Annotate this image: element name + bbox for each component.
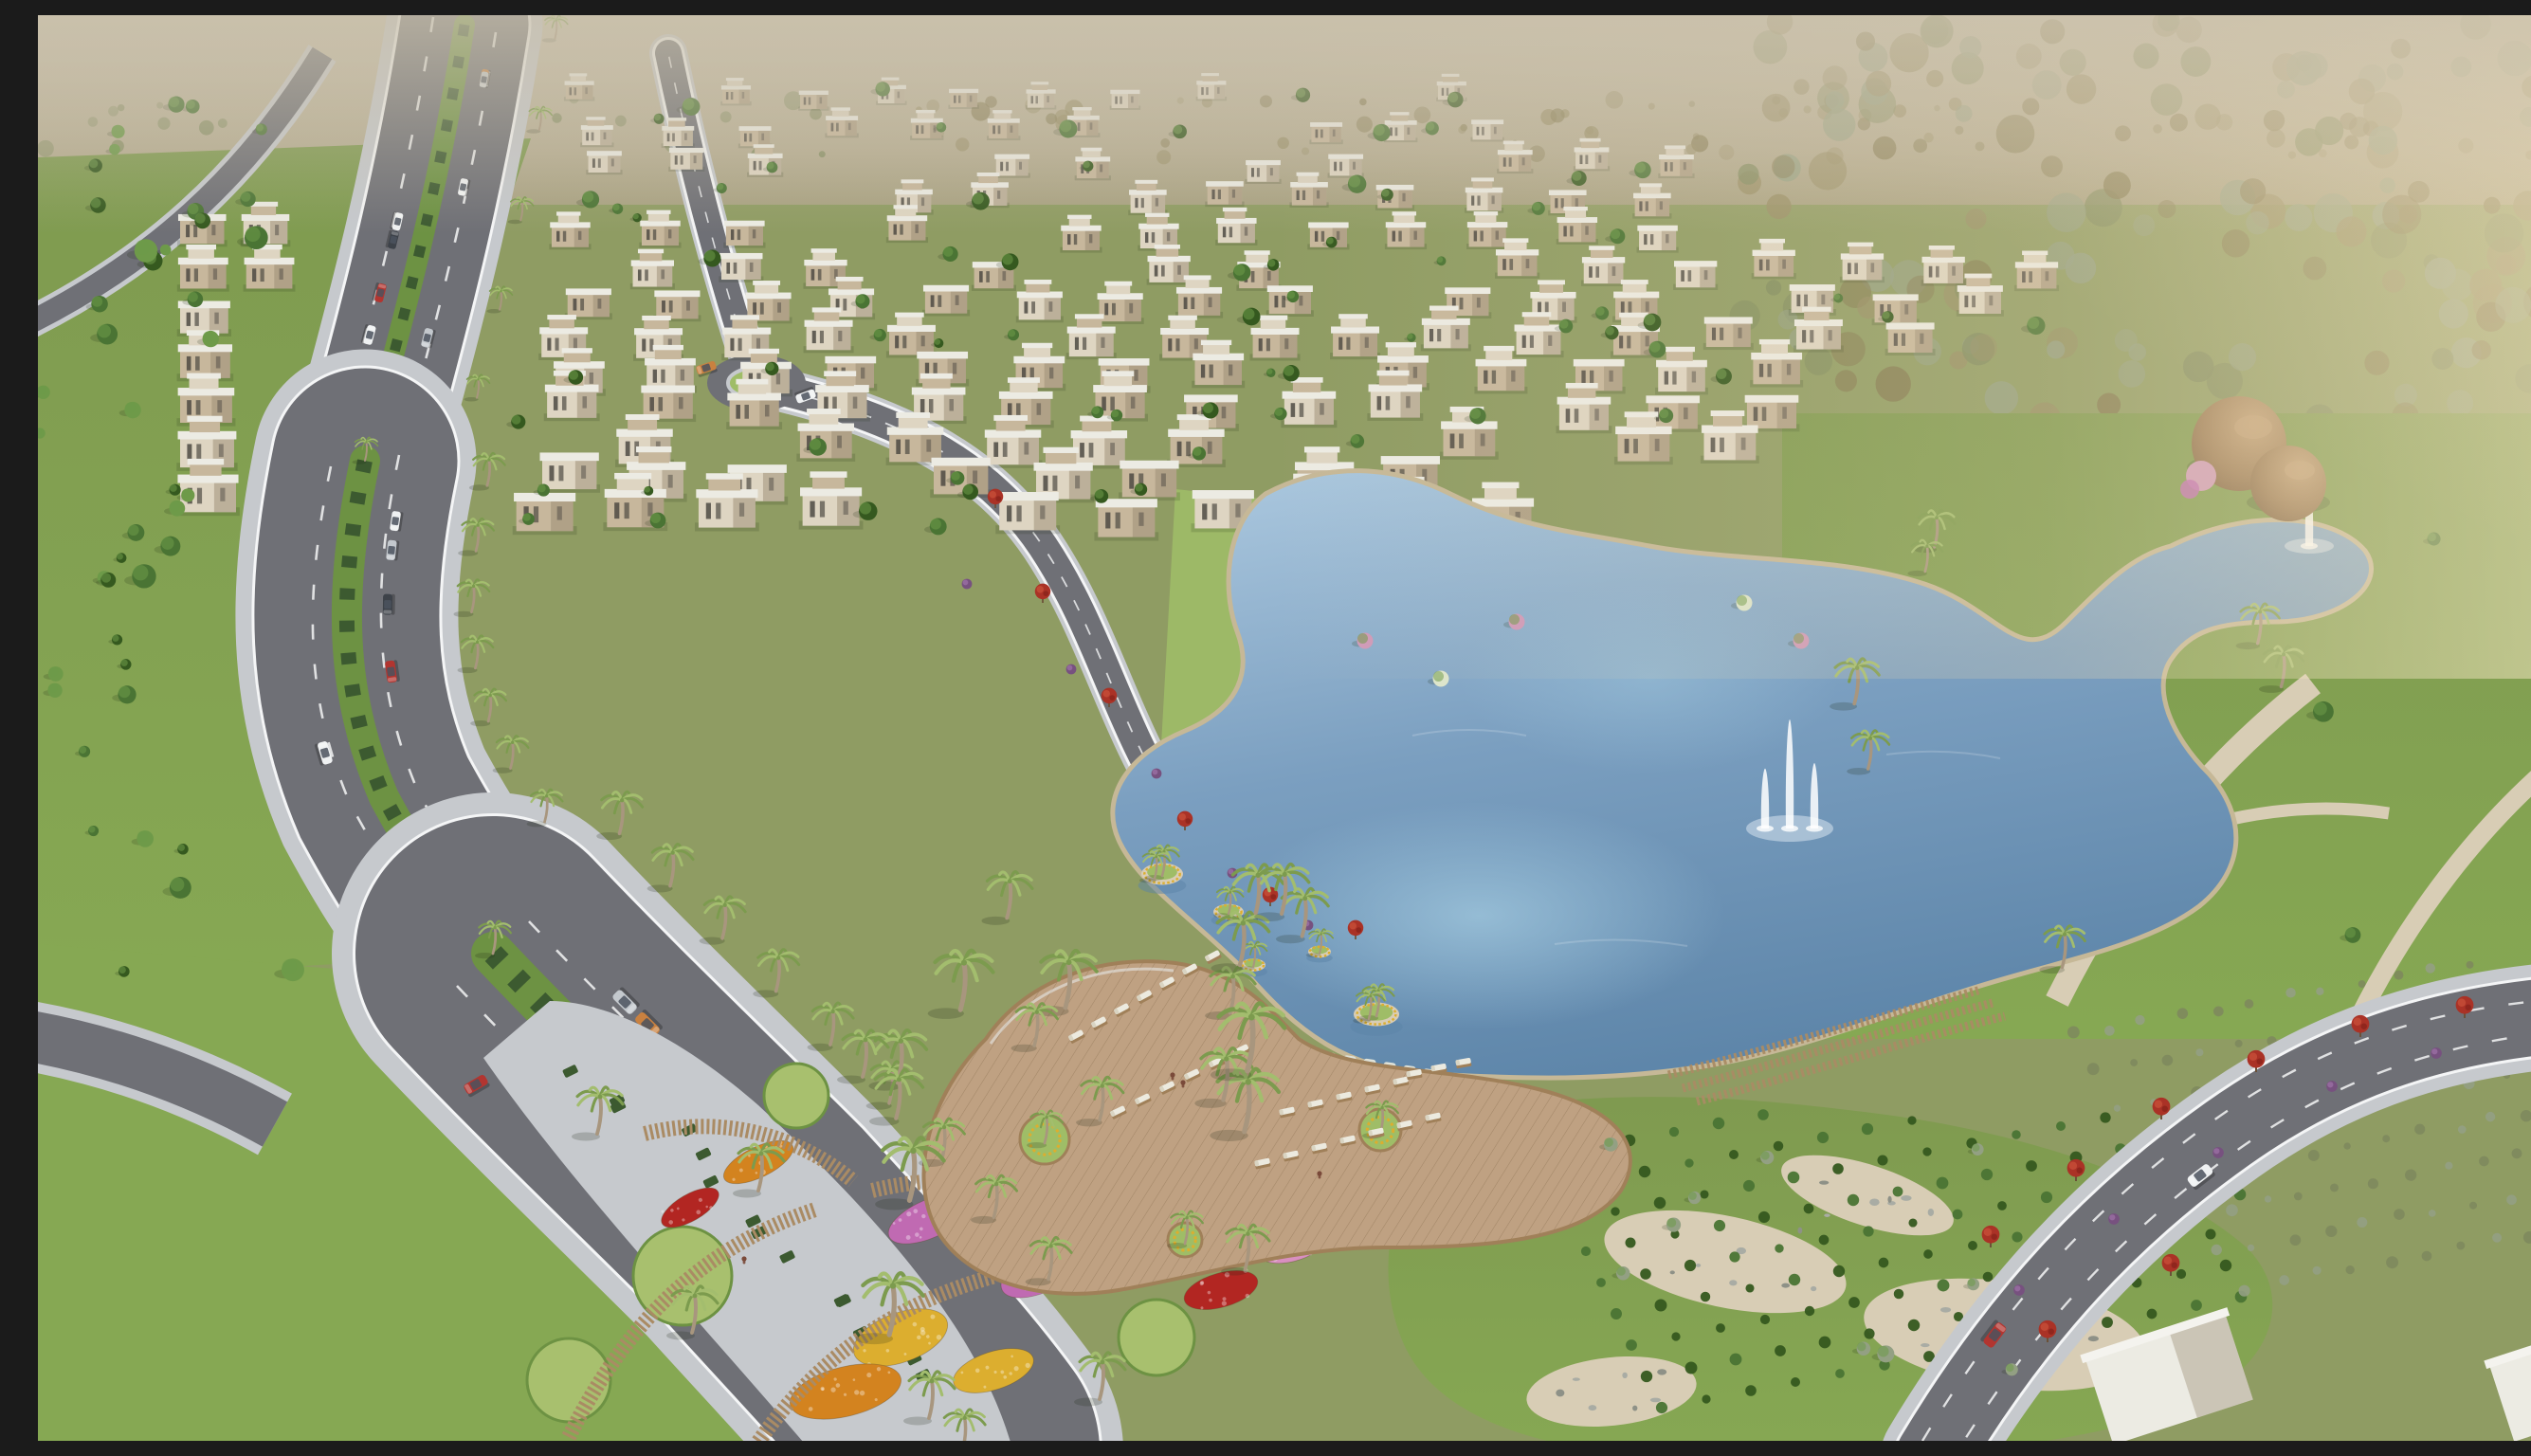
purple-shrub (2431, 1047, 2442, 1059)
scrub-shrub (2467, 961, 2474, 969)
orchard-shrub (1669, 1127, 1679, 1137)
rock (1940, 1307, 1951, 1313)
orchard-shrub (1729, 1150, 1739, 1159)
rock (1887, 1196, 1891, 1203)
rock (1632, 1406, 1637, 1411)
scrub-shrub (2429, 1210, 2436, 1217)
rock (1650, 1398, 1661, 1403)
purple-shrub (2013, 1284, 2025, 1296)
orchard-shrub (1938, 1280, 1950, 1292)
purple-shrub (1152, 769, 1162, 779)
rock (1921, 1343, 1930, 1347)
scrub-shrub (2265, 1195, 2271, 1202)
orchard-shrub (1922, 1147, 1931, 1156)
orchard-shrub (1684, 1158, 1693, 1167)
orchard-shrub (1775, 1345, 1786, 1356)
scrub-shrub (2512, 1148, 2522, 1158)
orchard-shrub (1894, 1289, 1904, 1300)
orchard-shrub (1714, 1220, 1725, 1231)
scrub-shrub (2279, 1275, 2289, 1285)
scrub-shrub (2414, 1124, 2425, 1135)
orchard-shrub (1835, 1369, 1845, 1378)
orchard-shrub (1877, 1155, 1887, 1165)
orchard-shrub (1805, 1306, 1814, 1316)
scrub-shrub (2456, 1242, 2465, 1250)
orchard-shrub (1848, 1297, 1860, 1308)
orchard-shrub (2100, 1112, 2110, 1122)
orchard-shrub (1641, 1371, 1652, 1382)
scrub-shrub (2405, 1169, 2416, 1180)
rock (1556, 1390, 1564, 1397)
orchard-shrub (1701, 1292, 1710, 1301)
orchard-shrub (1713, 1118, 1725, 1130)
purple-shrub (962, 579, 973, 590)
orchard-shrub (1907, 1116, 1916, 1124)
orchard-shrub (1700, 1190, 1708, 1198)
scrub-shrub (2485, 1112, 2495, 1121)
rock (1657, 1369, 1666, 1374)
orchard-shrub (1968, 1241, 1977, 1250)
rock (1729, 1280, 1737, 1285)
scrub-shrub (2104, 1026, 2115, 1036)
scrub-shrub (2469, 1202, 2477, 1210)
scrub-shrub (2290, 1234, 2302, 1246)
scrub-shrub (2357, 1217, 2367, 1228)
orchard-shrub (1817, 1132, 1829, 1143)
rock (1824, 1213, 1830, 1217)
rock (1622, 1373, 1628, 1378)
scrub-shrub (2382, 1135, 2390, 1142)
orchard-shrub (2205, 1228, 2215, 1239)
orchard-shrub (2056, 1121, 2066, 1131)
orchard-shrub (1789, 1274, 1800, 1285)
orchard-shrub (1596, 1278, 1606, 1287)
scrub-shrub (2285, 988, 2296, 998)
scrub-shrub (2316, 988, 2323, 995)
scrub-shrub (2114, 1104, 2121, 1111)
orchard-shrub (1775, 1244, 1783, 1252)
car (383, 594, 395, 615)
orchard-shrub (1760, 1315, 1770, 1324)
scrub-shrub (2294, 1192, 2303, 1201)
aerial-community-render (38, 15, 2531, 1441)
horizon-haze (38, 15, 2531, 233)
rock (1928, 1209, 1934, 1216)
orchard-shrub (1702, 1394, 1710, 1403)
scrub-shrub (2358, 980, 2366, 988)
orchard-shrub (1654, 1197, 1666, 1209)
rock (2088, 1336, 2099, 1341)
orchard-shrub (1640, 1268, 1651, 1280)
orchard-shrub (1997, 1201, 2007, 1210)
rock (1589, 1405, 1597, 1410)
scrub-shrub (2213, 1006, 2224, 1016)
orchard-shrub (1923, 1249, 1933, 1259)
orchard-shrub (1804, 1204, 1814, 1214)
villa (995, 492, 1060, 534)
villa (513, 493, 577, 535)
orchard-shrub (2220, 1260, 2231, 1271)
scrub-shrub (2479, 1156, 2489, 1167)
purple-shrub (2326, 1081, 2338, 1092)
orchard-shrub (1774, 1141, 1784, 1152)
orchard-shrub (2102, 1317, 2113, 1328)
rock (1819, 1181, 1829, 1185)
orchard-shrub (1716, 1323, 1725, 1333)
orchard-shrub (1671, 1332, 1680, 1340)
scrub-shrub (2135, 1015, 2144, 1025)
lawn-pod (764, 1064, 828, 1128)
scrub-shrub (2445, 1162, 2452, 1170)
orchard-shrub (1819, 1337, 1831, 1349)
scrub-shrub (2458, 1125, 2467, 1134)
orchard-shrub (1832, 1163, 1844, 1174)
orchard-shrub (1611, 1308, 1622, 1319)
orchard-shrub (1581, 1247, 1591, 1256)
scrub-shrub (2325, 1226, 2337, 1237)
scrub-shrub (2177, 1008, 2189, 1019)
orchard-shrub (2026, 1160, 2037, 1172)
purple-shrub (1066, 664, 1077, 675)
scrub-shrub (2492, 1233, 2502, 1243)
purple-shrub (2108, 1213, 2120, 1225)
orchard-shrub (1981, 1169, 1993, 1180)
scrub-shrub (2226, 1204, 2238, 1216)
scrub-shrub (2426, 963, 2435, 973)
orchard-shrub (2191, 1300, 2202, 1311)
rock (1696, 1264, 1701, 1267)
scrub-shrub (2067, 1026, 2080, 1038)
rock (1573, 1377, 1580, 1381)
purple-shrub (2212, 1147, 2224, 1158)
orchard-shrub (1862, 1123, 1873, 1135)
orchard-shrub (1983, 1272, 1994, 1283)
orchard-shrub (2041, 1192, 2052, 1203)
scrub-shrub (2394, 1209, 2405, 1220)
orchard-shrub (1656, 1402, 1667, 1413)
orchard-shrub (1626, 1339, 1637, 1351)
orchard-shrub (1611, 1207, 1619, 1215)
orchard-shrub (1863, 1226, 1873, 1236)
lawn-pod (1119, 1300, 1194, 1375)
orchard-shrub (1684, 1260, 1696, 1271)
orchard-shrub (1819, 1235, 1830, 1246)
orchard-shrub (1745, 1385, 1757, 1396)
rock (1811, 1286, 1816, 1291)
orchard-shrub (1864, 1328, 1874, 1338)
orchard-shrub (1758, 1211, 1770, 1223)
orchard-shrub (2147, 1309, 2158, 1319)
villa (1094, 499, 1158, 540)
scrub-shrub (2394, 971, 2403, 980)
orchard-shrub (1788, 1172, 1800, 1184)
scrub-shrub (2422, 1251, 2432, 1262)
scrub-shrub (2245, 999, 2254, 1009)
scrub-shrub (2343, 1142, 2350, 1149)
orchard-shrub (1791, 1377, 1800, 1387)
scrub-shrub (2368, 1178, 2378, 1189)
rock (1781, 1283, 1790, 1288)
scrub-shrub (2195, 1048, 2203, 1056)
orchard-shrub (1625, 1237, 1635, 1247)
orchard-shrub (1879, 1258, 1889, 1268)
rock (1670, 1270, 1675, 1274)
orchard-shrub (2012, 1231, 2022, 1242)
scrub-shrub (2248, 1245, 2254, 1251)
scrub-shrub (2212, 1245, 2222, 1255)
orchard-shrub (1833, 1265, 1845, 1277)
scrub-shrub (2308, 1150, 2320, 1161)
scrub-shrub (2162, 1055, 2174, 1066)
scrub-shrub (2506, 1194, 2517, 1205)
orchard-shrub (1893, 1187, 1903, 1197)
villa (1119, 461, 1180, 500)
scrub-shrub (2235, 1040, 2243, 1047)
rock (1901, 1195, 1911, 1201)
scrub-shrub (2130, 1059, 2138, 1066)
scrub-shrub (2087, 1063, 2100, 1075)
orchard-shrub (1848, 1194, 1859, 1206)
orchard-shrub (1757, 1109, 1769, 1120)
orchard-shrub (1655, 1300, 1667, 1312)
scrub-shrub (2313, 1266, 2322, 1275)
scrub-shrub (2346, 1265, 2355, 1274)
orchard-shrub (2012, 1130, 2021, 1139)
villa (719, 253, 763, 282)
orchard-shrub (1685, 1362, 1698, 1374)
car (386, 539, 399, 560)
orchard-shrub (1639, 1166, 1650, 1177)
scene-canvas (38, 15, 2531, 1441)
orchard-shrub (1745, 1283, 1754, 1292)
orchard-shrub (2176, 1269, 2186, 1279)
orchard-shrub (1730, 1354, 1742, 1366)
orchard-shrub (1743, 1180, 1755, 1192)
orchard-shrub (1908, 1218, 1917, 1227)
rock (1869, 1198, 1880, 1206)
orchard-shrub (1937, 1177, 1949, 1190)
orchard-shrub (1908, 1319, 1921, 1332)
scrub-shrub (2330, 1183, 2339, 1192)
rock (1797, 1228, 1802, 1234)
villa (922, 285, 970, 317)
orchard-shrub (1953, 1210, 1963, 1220)
orchard-shrub (1729, 1251, 1739, 1262)
scrub-shrub (2386, 1256, 2398, 1268)
scrub-shrub (2239, 1285, 2250, 1297)
